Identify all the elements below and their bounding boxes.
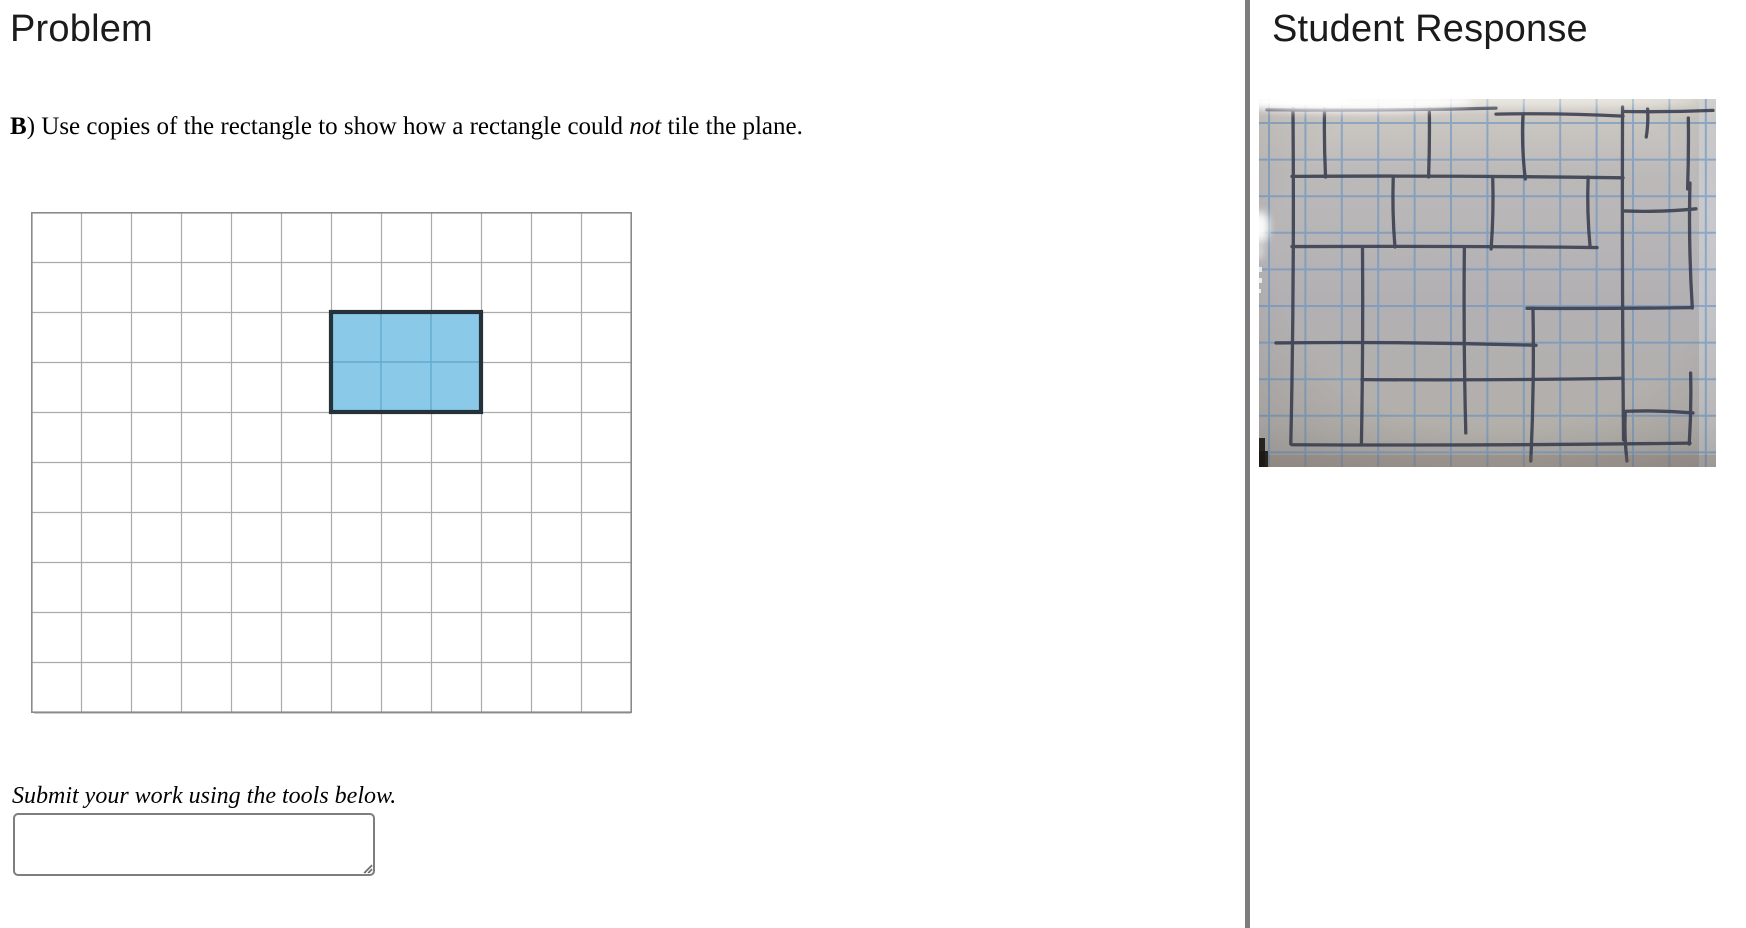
tiling-grid-figure (31, 212, 633, 714)
answer-box (13, 813, 379, 880)
student-response-panel: Student Response (1250, 0, 1746, 928)
question-text-part: B (10, 113, 27, 140)
answer-textarea[interactable] (13, 813, 375, 876)
question-text: B) Use copies of the rectangle to show h… (10, 110, 1110, 144)
question-text-part: tile the plane. (661, 113, 803, 140)
student-response-title: Student Response (1272, 8, 1588, 51)
page: Problem B) Use copies of the rectangle t… (0, 0, 1746, 928)
student-work-photo (1259, 99, 1716, 467)
problem-title: Problem (10, 8, 153, 51)
question-text-part: ) Use copies of the rectangle to show ho… (27, 113, 630, 140)
sample-rectangle (331, 312, 481, 412)
tiling-grid-svg (31, 212, 633, 714)
submit-instruction: Submit your work using the tools below. (12, 783, 396, 810)
student-work-photo-svg (1259, 99, 1716, 467)
problem-panel: Problem B) Use copies of the rectangle t… (0, 0, 1245, 928)
question-text-part: not (629, 113, 661, 140)
